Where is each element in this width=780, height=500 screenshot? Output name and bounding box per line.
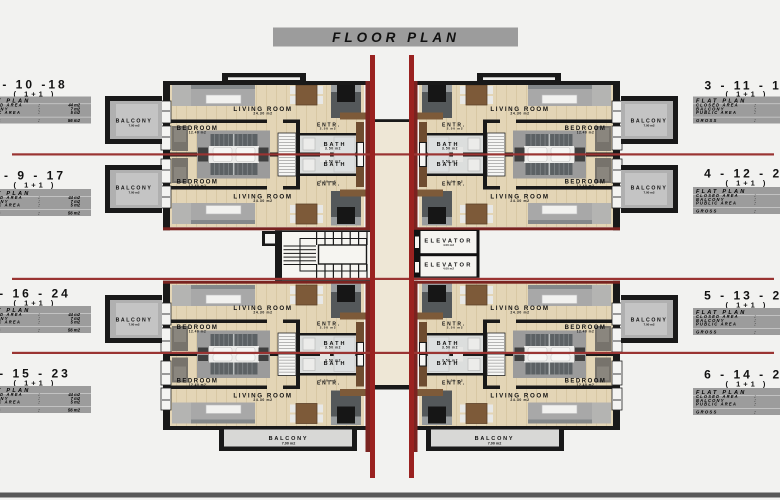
svg-text:3.50 m2: 3.50 m2 bbox=[442, 159, 458, 163]
svg-text:7.00 m2: 7.00 m2 bbox=[643, 123, 654, 127]
svg-text:2.50 m2: 2.50 m2 bbox=[447, 326, 464, 330]
svg-text:( 1+1 ): ( 1+1 ) bbox=[726, 179, 769, 188]
svg-text:24.30 m2: 24.30 m2 bbox=[510, 112, 529, 116]
svg-text:7.00 m2: 7.00 m2 bbox=[128, 322, 139, 326]
svg-text:12.40 m2: 12.40 m2 bbox=[577, 329, 594, 333]
svg-text:56 m2: 56 m2 bbox=[68, 327, 81, 332]
svg-text:3.50 m2: 3.50 m2 bbox=[442, 346, 458, 350]
svg-text:3.50 m2: 3.50 m2 bbox=[325, 346, 341, 350]
svg-text:12.40 m2: 12.40 m2 bbox=[577, 130, 594, 134]
svg-text:7.00 m2: 7.00 m2 bbox=[128, 191, 139, 195]
svg-text:12.40 m2: 12.40 m2 bbox=[577, 383, 594, 387]
svg-text:5 m2: 5 m2 bbox=[71, 202, 81, 207]
svg-text:PUBLIC AREA: PUBLIC AREA bbox=[696, 401, 737, 406]
svg-text:3.50 m2: 3.50 m2 bbox=[325, 147, 341, 151]
svg-text:2.50 m2: 2.50 m2 bbox=[447, 127, 464, 131]
svg-text:GROSS: GROSS bbox=[696, 409, 718, 414]
svg-text:2.50 m2: 2.50 m2 bbox=[320, 127, 337, 131]
svg-text:GROSS: GROSS bbox=[0, 210, 2, 215]
svg-text:56 m2: 56 m2 bbox=[68, 407, 81, 412]
svg-text:PUBLIC AREA: PUBLIC AREA bbox=[696, 110, 737, 115]
svg-text:3.50 m2: 3.50 m2 bbox=[442, 147, 458, 151]
svg-text:( 1+1 ): ( 1+1 ) bbox=[726, 380, 769, 389]
svg-text:24.30 m2: 24.30 m2 bbox=[253, 311, 272, 315]
svg-text:3.50 m2: 3.50 m2 bbox=[325, 358, 341, 362]
svg-text:PUBLIC AREA: PUBLIC AREA bbox=[696, 200, 737, 205]
svg-text:12.40 m2: 12.40 m2 bbox=[189, 184, 206, 188]
svg-text:5 m2: 5 m2 bbox=[71, 319, 81, 324]
svg-text:GROSS: GROSS bbox=[0, 118, 2, 123]
svg-text:4.00 m2: 4.00 m2 bbox=[443, 267, 454, 271]
svg-text:GROSS: GROSS bbox=[696, 208, 718, 213]
svg-text:12.40 m2: 12.40 m2 bbox=[577, 184, 594, 188]
svg-text:24.30 m2: 24.30 m2 bbox=[253, 112, 272, 116]
svg-text:56 m2: 56 m2 bbox=[68, 210, 81, 215]
svg-text:2.50 m2: 2.50 m2 bbox=[320, 326, 337, 330]
svg-text:24.30 m2: 24.30 m2 bbox=[510, 199, 529, 203]
svg-text:GROSS: GROSS bbox=[0, 407, 2, 412]
svg-text:3.50 m2: 3.50 m2 bbox=[442, 358, 458, 362]
svg-text:3.50 m2: 3.50 m2 bbox=[325, 159, 341, 163]
svg-text:PUBLIC AREA: PUBLIC AREA bbox=[696, 321, 737, 326]
svg-text:GROSS: GROSS bbox=[696, 329, 718, 334]
svg-text:12.40 m2: 12.40 m2 bbox=[189, 383, 206, 387]
svg-text:7.00 m2: 7.00 m2 bbox=[282, 442, 296, 446]
svg-text:2.50 m2: 2.50 m2 bbox=[320, 378, 337, 382]
svg-text:4.00 m2: 4.00 m2 bbox=[443, 243, 454, 247]
svg-text:PUBLIC AREA: PUBLIC AREA bbox=[0, 110, 21, 115]
svg-text:2.50 m2: 2.50 m2 bbox=[447, 378, 464, 382]
svg-text:PUBLIC AREA: PUBLIC AREA bbox=[0, 399, 21, 404]
svg-text:GROSS: GROSS bbox=[696, 118, 718, 123]
svg-text:GROSS: GROSS bbox=[0, 327, 2, 332]
svg-text:2.50 m2: 2.50 m2 bbox=[320, 179, 337, 183]
svg-text:5 m2: 5 m2 bbox=[71, 399, 81, 404]
svg-text:24.30 m2: 24.30 m2 bbox=[510, 311, 529, 315]
svg-text:PUBLIC AREA: PUBLIC AREA bbox=[0, 319, 21, 324]
svg-text:PUBLIC AREA: PUBLIC AREA bbox=[0, 202, 21, 207]
svg-text:7.00 m2: 7.00 m2 bbox=[643, 191, 654, 195]
svg-text:FLOOR PLAN: FLOOR PLAN bbox=[332, 30, 460, 45]
svg-text:2.50 m2: 2.50 m2 bbox=[447, 179, 464, 183]
svg-text:24.30 m2: 24.30 m2 bbox=[253, 398, 272, 402]
svg-text:24.30 m2: 24.30 m2 bbox=[510, 398, 529, 402]
svg-text:5 m2: 5 m2 bbox=[71, 110, 81, 115]
svg-text:( 1+1 ): ( 1+1 ) bbox=[14, 180, 57, 189]
svg-text:12.40 m2: 12.40 m2 bbox=[189, 130, 206, 134]
svg-text:7.00 m2: 7.00 m2 bbox=[488, 442, 502, 446]
svg-text:7.00 m2: 7.00 m2 bbox=[643, 322, 654, 326]
svg-text:24.30 m2: 24.30 m2 bbox=[253, 199, 272, 203]
svg-text:7.00 m2: 7.00 m2 bbox=[128, 123, 139, 127]
svg-text:56 m2: 56 m2 bbox=[68, 118, 81, 123]
svg-text:12.40 m2: 12.40 m2 bbox=[189, 329, 206, 333]
